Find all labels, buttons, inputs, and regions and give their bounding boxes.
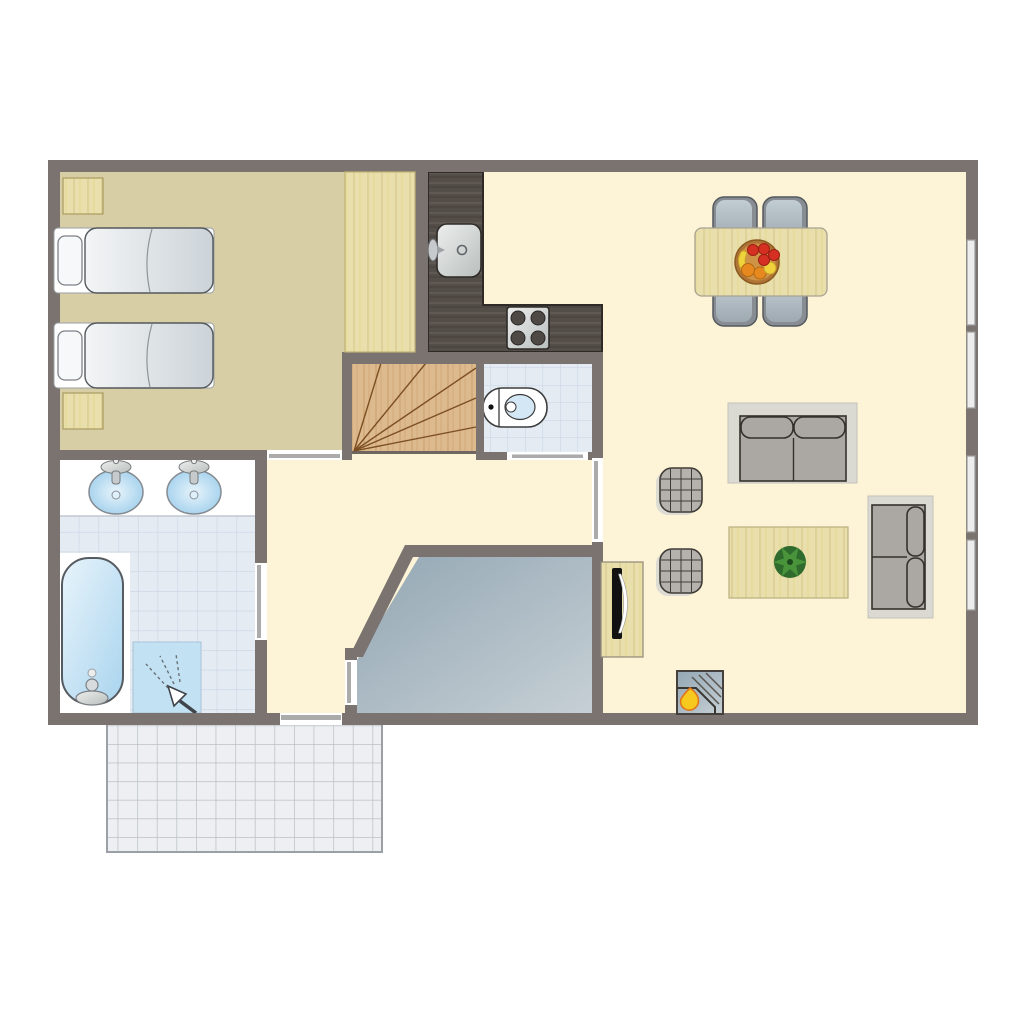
wall-toilet-left <box>476 360 484 460</box>
wardrobe <box>345 172 415 352</box>
wall-mid-horizontal <box>342 352 603 364</box>
single-bed <box>54 228 214 293</box>
fruit-bowl-icon <box>735 240 780 284</box>
wall-bottom <box>48 713 978 725</box>
fireplace-icon <box>677 671 723 714</box>
pouf-icon <box>656 468 702 515</box>
living-room-door <box>594 461 598 539</box>
terrace-tiles <box>107 722 382 852</box>
sofa-two-seat-right <box>868 496 933 618</box>
terrace-sliding-door <box>281 715 341 720</box>
tv-cabinet <box>601 562 643 657</box>
window-1 <box>967 240 975 325</box>
nightstand <box>63 178 103 214</box>
stove-icon <box>507 307 549 349</box>
toilet-door <box>512 455 583 459</box>
bathtub-icon <box>62 558 123 705</box>
wall-bedroom-bottom <box>48 450 267 460</box>
toilet-room <box>482 364 592 452</box>
duvet <box>85 323 213 388</box>
pillow <box>58 331 82 380</box>
coffee-table <box>729 527 848 598</box>
wall-top <box>48 160 978 172</box>
single-bed <box>54 323 214 388</box>
bedroom-door <box>269 454 340 458</box>
window-2 <box>967 332 975 408</box>
wall-storage-top <box>405 545 592 557</box>
staircase <box>352 362 478 454</box>
wall-bedroom-kitchen <box>415 172 428 352</box>
sofa-two-seat-top <box>728 403 857 483</box>
storage-room-door <box>347 662 351 703</box>
nightstand <box>63 393 103 429</box>
wall-stairs-left <box>342 352 352 460</box>
bathroom-door <box>257 565 261 638</box>
faucet-icon <box>428 239 438 261</box>
pillow <box>58 236 82 285</box>
wall-storage-left-a <box>345 648 357 662</box>
window-3 <box>967 456 975 532</box>
shower-tray <box>133 642 201 713</box>
floor-plan-page <box>0 0 1024 1024</box>
window-4 <box>967 540 975 610</box>
bathroom <box>58 458 255 713</box>
duvet <box>85 228 213 293</box>
toilet-icon <box>483 388 547 427</box>
pouf-icon <box>656 549 702 596</box>
floor-plan-canvas <box>0 0 1024 1024</box>
